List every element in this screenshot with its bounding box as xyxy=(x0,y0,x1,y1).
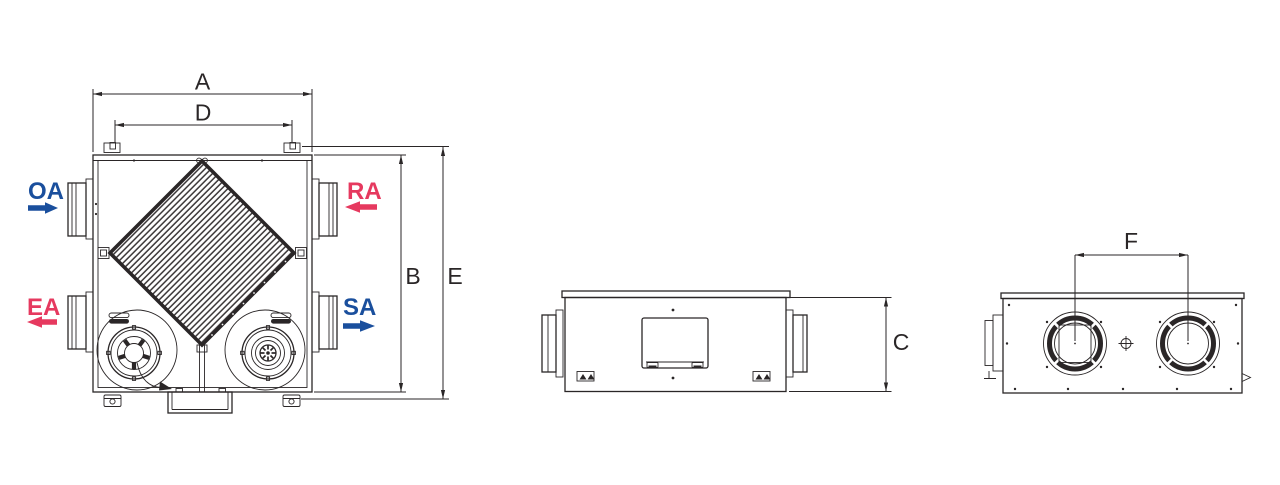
foot-bracket-left xyxy=(104,395,121,407)
ra-label: RA xyxy=(347,178,382,205)
end-view-lid xyxy=(1001,293,1244,299)
fan-spokes xyxy=(119,340,149,369)
access-panel xyxy=(642,318,708,368)
side-foot-symbol-right xyxy=(753,372,771,382)
dimension-b-label: B xyxy=(405,263,420,289)
dimension-d-label: D xyxy=(195,100,212,126)
dimension-d: D xyxy=(115,100,292,143)
core-bracket-left xyxy=(98,248,109,259)
side-view-lid xyxy=(562,291,790,298)
duct-port-ra xyxy=(312,179,337,239)
side-port-right xyxy=(786,310,807,377)
mounting-rail-left xyxy=(104,143,120,153)
oa-label: OA xyxy=(28,178,64,205)
hrv-dimensional-drawing: A D B E xyxy=(0,0,1280,485)
duct-port-ea xyxy=(68,292,93,352)
dimension-f-label: F xyxy=(1124,228,1138,254)
top-view: A D B E xyxy=(27,69,463,414)
crosshair-port-icon xyxy=(1119,336,1134,351)
dimension-e: E xyxy=(301,147,463,400)
exhaust-fan xyxy=(97,310,177,391)
core-bracket-right xyxy=(296,248,307,259)
side-port-left xyxy=(542,310,563,377)
mounting-rail-right xyxy=(284,143,300,153)
end-bottom-hook xyxy=(1242,374,1251,382)
end-view-body xyxy=(1003,299,1242,394)
flow-label-ra: RA xyxy=(345,178,382,213)
dimension-e-label: E xyxy=(447,263,462,289)
supply-fan xyxy=(225,310,305,390)
side-foot-symbol-left xyxy=(577,372,595,382)
end-side-flange xyxy=(984,315,1003,379)
foot-bracket-right xyxy=(283,395,300,407)
dimension-a-label: A xyxy=(195,69,211,95)
bottom-junction-box xyxy=(168,389,232,414)
duct-port-oa xyxy=(68,179,93,239)
end-view: F xyxy=(984,228,1251,393)
flow-label-ea: EA xyxy=(27,294,60,328)
dimension-c-label: C xyxy=(893,329,910,355)
flow-label-sa: SA xyxy=(343,294,376,332)
sa-label: SA xyxy=(343,294,376,321)
side-view: C xyxy=(542,291,909,392)
technical-drawing-canvas: A D B E xyxy=(0,0,1280,485)
flow-label-oa: OA xyxy=(28,178,64,214)
sa-arrow-right-icon xyxy=(343,320,375,331)
ea-label: EA xyxy=(27,294,60,321)
duct-port-sa xyxy=(312,292,337,352)
